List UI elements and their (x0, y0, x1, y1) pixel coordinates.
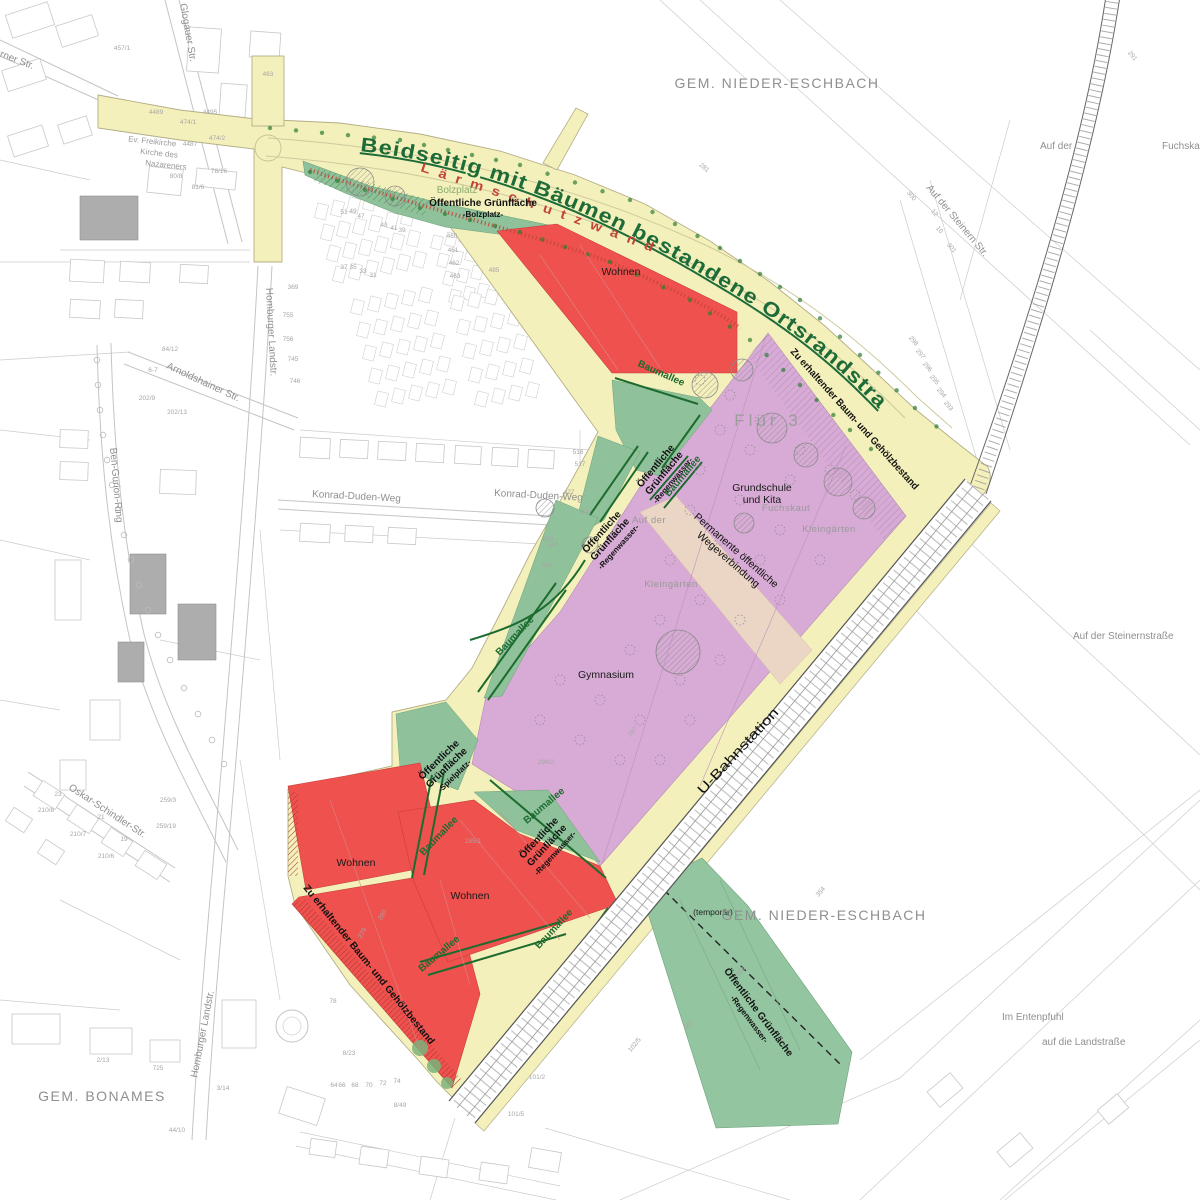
parcel-number: 101/5 (508, 1111, 525, 1118)
parcel-number: 72 (379, 1080, 387, 1087)
parcel-number: 474/1 (180, 119, 197, 126)
parcel-number: 755 (283, 312, 294, 319)
large-building (178, 604, 216, 660)
building (180, 264, 209, 283)
area-name-3: Auf der (632, 515, 666, 526)
parcel-number: 369 (288, 284, 299, 291)
road-tree (695, 234, 699, 238)
building (12, 1014, 60, 1044)
building (492, 447, 519, 466)
area-name-2: Kleingärten (644, 579, 698, 590)
building (388, 527, 417, 544)
wohnen-label-west: Wohnen (337, 857, 376, 869)
building (455, 445, 482, 464)
road-tree (346, 133, 350, 137)
road-tree (748, 338, 752, 342)
road-tree (518, 163, 522, 167)
road-tree (600, 189, 604, 193)
parcel-number: 6-7 (148, 367, 158, 374)
building (479, 1162, 509, 1184)
road-tree (563, 245, 567, 249)
parcel-number: 202/13 (167, 409, 187, 416)
building (359, 1146, 389, 1168)
street-label-13: Im Entenpfuhl (1002, 1012, 1064, 1023)
building (222, 1000, 256, 1048)
parcel-number: 460 (447, 233, 458, 240)
parcel-number: 427 (564, 489, 575, 496)
parcel-number: 44/10 (169, 1127, 186, 1134)
parcel-number: 3/14 (217, 1085, 230, 1092)
building (416, 443, 445, 462)
flur-label: Flur 3 (734, 411, 801, 430)
existing-tree (824, 468, 852, 496)
parcel-number: 745 (288, 356, 299, 363)
large-building (80, 196, 138, 240)
svg-text:-Bolzplatz-: -Bolzplatz- (463, 210, 504, 219)
road-tree (688, 298, 692, 302)
road-tree (838, 334, 842, 338)
existing-tree (656, 630, 700, 674)
road-tree (443, 212, 447, 216)
gem-nieder-eschbach-south: GEM. NIEDER-ESCHBACH (721, 907, 926, 923)
road-tree (934, 424, 938, 428)
road-tree (818, 316, 822, 320)
svg-text:Gymnasium: Gymnasium (578, 669, 634, 681)
road-tree (798, 298, 802, 302)
road-tree (628, 198, 632, 202)
building (419, 1156, 449, 1178)
parcel-number: 463 (450, 273, 461, 280)
svg-text:Grundschule: Grundschule (732, 482, 792, 494)
road-tree (781, 368, 785, 372)
parcel-number: 101/2 (529, 1074, 546, 1081)
parcel-number: 37 (340, 264, 348, 271)
road-tree (814, 398, 818, 402)
parcel-number: 259/3 (160, 797, 177, 804)
road-tree (608, 260, 612, 264)
parcel-number: 78/16 (211, 168, 228, 175)
building (150, 1040, 180, 1062)
parcel-number: 457/1 (114, 45, 131, 52)
road-tree (876, 370, 880, 374)
parcel-number: 39 (398, 227, 406, 234)
road-tree (764, 353, 768, 357)
road-tree (494, 158, 498, 162)
parcel-number: 66 (338, 1082, 346, 1089)
road-tree (320, 131, 324, 135)
parcel-number: 202/9 (139, 395, 156, 402)
building (378, 441, 407, 460)
road-tree (718, 246, 722, 250)
tree (427, 1059, 441, 1073)
road-tree (518, 230, 522, 234)
building (300, 523, 331, 543)
parcel-number: 47 (357, 213, 365, 220)
street-label-12: Fuchskaut (1162, 141, 1200, 152)
parcel-number: 4495 (203, 109, 218, 116)
parcel-number: 31 (369, 272, 377, 279)
road-tree (858, 353, 862, 357)
road-tree (913, 406, 917, 410)
building (90, 700, 120, 740)
existing-tree (734, 513, 754, 533)
road-tree (308, 170, 312, 174)
building (299, 437, 330, 459)
street-label-14: auf die Landstraße (1042, 1037, 1126, 1048)
road-tree (294, 128, 298, 132)
gem-bonames: GEM. BONAMES (38, 1088, 166, 1104)
road-tree (738, 259, 742, 263)
parcel-number: 756 (283, 336, 294, 343)
parcel-number: 49 (349, 208, 357, 215)
facility-label-1: Gymnasium (578, 669, 634, 681)
parcel-number: 70 (365, 1082, 373, 1089)
building (60, 462, 89, 481)
parcel-number: 4487 (183, 141, 198, 148)
parcel-number: 461 (448, 247, 459, 254)
parcel-number: 80/8 (170, 173, 183, 180)
parcel-number: 84/12 (162, 346, 179, 353)
parcel-number: 74 (393, 1078, 401, 1085)
existing-tree (853, 497, 875, 519)
building (69, 259, 104, 283)
parcel-number: 2/13 (97, 1057, 110, 1064)
zoning-map-svg: Beidseitig mit Bäumen bestandene Ortsran… (0, 0, 1200, 1200)
road-tree (493, 224, 497, 228)
parcel-number: 35 (349, 264, 357, 271)
large-building (118, 642, 144, 682)
road-stub-north (252, 56, 284, 126)
existing-tree (385, 186, 405, 206)
parcel-number: 33 (359, 268, 367, 275)
building (345, 525, 374, 542)
existing-tree (794, 443, 818, 467)
building (70, 299, 101, 319)
parcel-number: 8/49 (394, 1102, 407, 1109)
bolzplatz-ghost-label: Bolzplatz (437, 185, 478, 196)
building (160, 469, 197, 494)
road-tree (673, 222, 677, 226)
svg-text:Öffentliche Grünfläche: Öffentliche Grünfläche (429, 196, 537, 209)
parcel-number: 725 (153, 1065, 164, 1072)
parcel-number: 485 (489, 267, 500, 274)
parcel-number: 64 (330, 1082, 338, 1089)
parcel-number: 4489 (149, 109, 164, 116)
building (115, 299, 144, 318)
road-tree (708, 311, 712, 315)
area-name-1: Kleingärten (802, 524, 856, 535)
parcel-number: 43 (380, 222, 388, 229)
building (55, 560, 81, 620)
parcel-number: 51 (340, 209, 348, 216)
parcel-number: 746 (290, 378, 301, 385)
building (119, 261, 150, 283)
parcel-number: 259/19 (156, 823, 176, 830)
road-tree (545, 172, 549, 176)
parcel-number: 68 (351, 1082, 359, 1089)
parcel-number: 81/6 (192, 184, 205, 191)
parcel-number: 296/2 (538, 759, 555, 766)
building (249, 31, 281, 59)
parcel-number: 19 (120, 836, 128, 843)
parcel-number: 442 (581, 509, 592, 516)
wohnen-label-north: Wohnen (602, 266, 641, 278)
existing-tree (692, 372, 718, 398)
wohnen-label-mid: Wohnen (451, 890, 490, 902)
road-tree (650, 210, 654, 214)
parcel-number: 23 (54, 791, 62, 798)
road-tree (418, 206, 422, 210)
parcel-number: 78 (329, 998, 337, 1005)
street-label-11: Auf der (1040, 141, 1073, 152)
parcel-number: 210/8 (38, 807, 55, 814)
parcel-number: 41 (390, 225, 398, 232)
road-tree (831, 413, 835, 417)
road-tree (778, 285, 782, 289)
gem-nieder-eschbach-north: GEM. NIEDER-ESCHBACH (674, 75, 879, 91)
parcel-number: 21 (97, 814, 105, 821)
building (60, 430, 89, 449)
building (90, 1028, 132, 1054)
road-tree (335, 179, 339, 183)
existing-tree (346, 168, 374, 196)
road-tree (758, 272, 762, 276)
building (340, 439, 369, 458)
large-building (130, 554, 166, 614)
parcel-number: 516 (573, 449, 584, 456)
parcel-number: 285/1 (465, 838, 482, 845)
parcel-number: 440 (548, 542, 559, 549)
road-tree (661, 285, 665, 289)
parcel-number: 463 (263, 71, 274, 78)
plan-map: Beidseitig mit Bäumen bestandene Ortsran… (0, 0, 1200, 1200)
parcel-number: 517 (575, 461, 586, 468)
parcel-number: 454 (542, 562, 553, 569)
road-tree (894, 388, 898, 392)
preserved-trees-band-red2 (288, 792, 298, 876)
street-label-10: Auf der Steinernstraße (1073, 631, 1174, 642)
parcel-number: 474/2 (209, 135, 226, 142)
building (309, 1138, 337, 1157)
parcel-number: 210/6 (98, 853, 115, 860)
road-tree (848, 428, 852, 432)
parcel-number: 8/23 (343, 1050, 356, 1057)
building (528, 449, 555, 468)
road-tree (728, 324, 732, 328)
tree (441, 1077, 453, 1089)
area-name-0: Fuchskaut (762, 503, 810, 514)
existing-tree (731, 359, 753, 381)
road-tree (798, 383, 802, 387)
parcel-number: 462 (449, 260, 460, 267)
parcel-number: 210/7 (70, 831, 87, 838)
road-tree (540, 237, 544, 241)
road-tree (573, 180, 577, 184)
road-tree (268, 126, 272, 130)
